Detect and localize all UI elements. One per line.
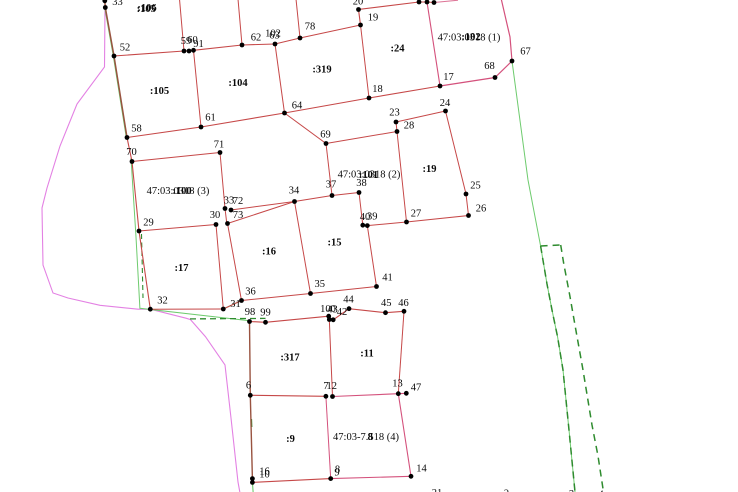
svg-text:69: 69	[320, 130, 331, 141]
svg-text::319: :319	[312, 65, 331, 76]
svg-text:31: 31	[230, 299, 241, 310]
svg-text::9: :9	[286, 434, 295, 445]
svg-text:23: 23	[389, 108, 400, 119]
svg-text:61: 61	[205, 113, 216, 124]
svg-text:33: 33	[112, 0, 123, 8]
svg-text:6: 6	[246, 381, 251, 392]
svg-text:35: 35	[315, 279, 326, 290]
svg-text:41: 41	[382, 273, 393, 284]
svg-text:72: 72	[233, 196, 244, 207]
svg-text::15: :15	[328, 238, 342, 249]
svg-text:58: 58	[131, 124, 142, 135]
svg-text::16: :16	[262, 247, 276, 258]
svg-text:62: 62	[251, 33, 262, 44]
svg-text:71: 71	[214, 140, 225, 151]
svg-text:63: 63	[269, 31, 280, 42]
svg-text:45: 45	[381, 298, 392, 309]
svg-text:46: 46	[398, 298, 409, 309]
svg-text::24: :24	[391, 44, 406, 55]
svg-text:20: 20	[353, 0, 364, 8]
svg-text:78: 78	[305, 22, 316, 33]
svg-text:12: 12	[327, 381, 338, 392]
svg-text::105: :105	[150, 86, 169, 97]
svg-text:99: 99	[260, 308, 271, 319]
svg-text:25: 25	[470, 181, 481, 192]
svg-text::317: :317	[280, 353, 299, 364]
svg-text:24: 24	[440, 98, 451, 109]
svg-text::11: :11	[360, 349, 373, 360]
svg-text:73: 73	[233, 210, 244, 221]
svg-text:18: 18	[372, 84, 383, 95]
svg-text:32: 32	[157, 296, 168, 307]
svg-text:34: 34	[289, 186, 300, 197]
svg-text:19: 19	[368, 13, 379, 24]
svg-text::105: :105	[137, 4, 156, 15]
svg-text::104: :104	[228, 78, 248, 89]
svg-text:9: 9	[334, 468, 339, 479]
svg-text::100: :100	[172, 186, 191, 197]
svg-text:30: 30	[210, 210, 221, 221]
svg-text:68: 68	[484, 61, 495, 72]
svg-text::19: :19	[423, 164, 437, 175]
svg-text:44: 44	[343, 295, 354, 306]
svg-text:27: 27	[411, 209, 422, 220]
svg-text:39: 39	[367, 212, 378, 223]
svg-text:14: 14	[416, 464, 427, 475]
svg-text:47: 47	[411, 383, 422, 394]
svg-text::17: :17	[175, 263, 189, 274]
svg-text:37: 37	[326, 179, 337, 190]
svg-text:52: 52	[120, 43, 131, 54]
svg-text:21: 21	[432, 488, 443, 492]
svg-text:91: 91	[193, 39, 204, 50]
svg-text:98: 98	[245, 307, 256, 318]
svg-text:64: 64	[292, 101, 303, 112]
svg-text:67: 67	[520, 47, 531, 58]
svg-text:26: 26	[476, 204, 487, 215]
svg-text::102: :102	[461, 32, 480, 43]
svg-text:8: 8	[368, 432, 373, 443]
svg-text:70: 70	[126, 147, 137, 158]
svg-text:17: 17	[443, 72, 454, 83]
svg-text:10: 10	[259, 470, 270, 481]
svg-text:36: 36	[245, 287, 256, 298]
svg-text:47:03-7.518 (4): 47:03-7.518 (4)	[333, 432, 399, 443]
svg-text:42: 42	[337, 307, 348, 318]
svg-text:38: 38	[356, 178, 367, 189]
svg-text:29: 29	[143, 218, 154, 229]
svg-text:28: 28	[404, 121, 415, 132]
svg-text:13: 13	[392, 379, 403, 390]
